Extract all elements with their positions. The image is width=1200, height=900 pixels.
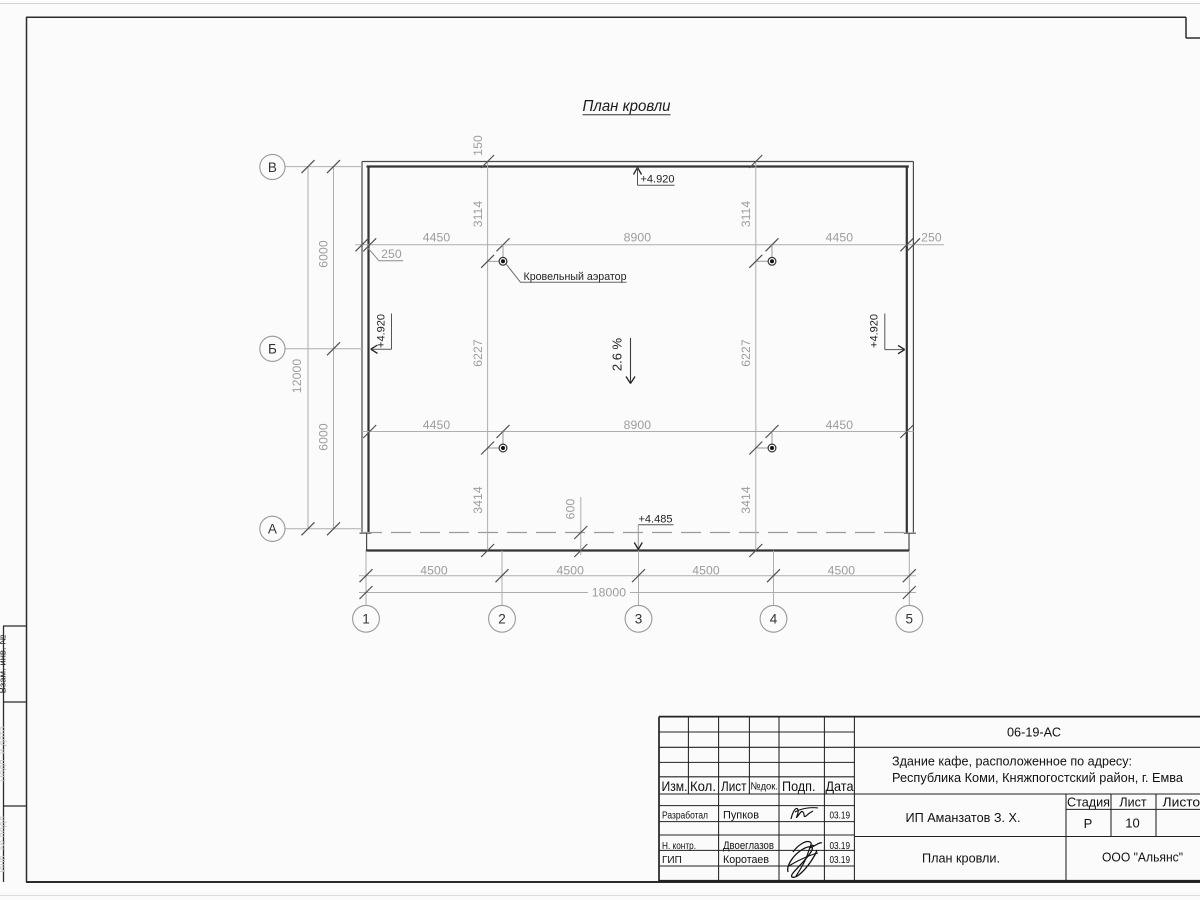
svg-text:4500: 4500: [828, 563, 856, 577]
svg-text:Лист: Лист: [721, 778, 747, 794]
svg-text:03.19: 03.19: [830, 810, 851, 821]
svg-text:4: 4: [770, 612, 778, 627]
svg-text:5: 5: [906, 612, 914, 627]
svg-text:Н. контр.: Н. контр.: [662, 841, 696, 852]
svg-text:Подп.: Подп.: [782, 778, 816, 794]
svg-text:Дата: Дата: [826, 778, 854, 794]
svg-text:4500: 4500: [420, 563, 448, 577]
svg-text:4500: 4500: [692, 563, 720, 577]
svg-text:6227: 6227: [739, 339, 753, 367]
svg-text:12000: 12000: [290, 359, 304, 394]
svg-text:+4.920: +4.920: [641, 174, 675, 186]
svg-text:6000: 6000: [316, 240, 330, 268]
svg-text:Кровельный аэратор: Кровельный аэратор: [524, 271, 627, 283]
svg-text:Двоеглазов: Двоеглазов: [723, 840, 774, 852]
svg-text:4450: 4450: [423, 230, 451, 244]
svg-text:4500: 4500: [556, 563, 584, 577]
svg-text:600: 600: [564, 499, 578, 520]
svg-text:3414: 3414: [739, 486, 753, 514]
svg-text:Пупков: Пупков: [723, 809, 759, 821]
svg-text:6227: 6227: [471, 339, 485, 367]
svg-text:Взам. инв. №: Взам. инв. №: [0, 635, 9, 694]
svg-text:+4.920: +4.920: [376, 314, 388, 348]
svg-text:Республика Коми, Княжпогостски: Республика Коми, Княжпогостский район, г…: [892, 770, 1184, 785]
svg-text:Разработал: Разработал: [662, 809, 708, 821]
svg-text:03.19: 03.19: [830, 841, 851, 852]
svg-text:Коротаев: Коротаев: [723, 854, 769, 866]
svg-text:ГИП: ГИП: [662, 855, 682, 866]
svg-text:3114: 3114: [739, 201, 753, 228]
svg-text:2.6 %: 2.6 %: [610, 337, 625, 371]
svg-text:План кровли.: План кровли.: [922, 850, 1000, 865]
svg-text:+4.485: +4.485: [639, 514, 673, 526]
svg-text:4450: 4450: [826, 418, 854, 432]
svg-text:06-19-АС: 06-19-АС: [1007, 725, 1061, 740]
svg-text:Стадия: Стадия: [1067, 795, 1110, 809]
svg-text:ООО "Альянс": ООО "Альянс": [1102, 849, 1183, 864]
svg-text:А: А: [268, 522, 277, 537]
svg-text:18000: 18000: [592, 585, 627, 599]
svg-text:Инв. № подл.: Инв. № подл.: [0, 813, 8, 872]
svg-text:№док.: №док.: [751, 781, 779, 793]
svg-text:4450: 4450: [423, 418, 451, 432]
svg-text:Кол.: Кол.: [690, 778, 716, 794]
svg-text:250: 250: [381, 247, 402, 261]
svg-text:3414: 3414: [471, 486, 485, 514]
svg-text:Лист: Лист: [1119, 795, 1146, 809]
svg-text:Подп. и дата: Подп. и дата: [0, 725, 8, 782]
svg-text:Листов: Листов: [1163, 795, 1200, 809]
svg-text:8900: 8900: [624, 230, 652, 244]
svg-text:Здание кафе, расположенное по: Здание кафе, расположенное по адресу:: [892, 754, 1132, 769]
svg-text:+4.920: +4.920: [869, 314, 881, 348]
svg-text:10: 10: [1125, 815, 1139, 830]
svg-text:03.19: 03.19: [830, 855, 851, 866]
svg-text:2: 2: [498, 612, 506, 627]
svg-text:150: 150: [471, 135, 485, 156]
svg-text:1: 1: [362, 612, 370, 627]
svg-text:3: 3: [635, 612, 643, 627]
svg-text:Изм.: Изм.: [662, 778, 688, 794]
svg-text:План кровли: План кровли: [583, 98, 671, 115]
svg-text:250: 250: [921, 230, 942, 244]
svg-text:Б: Б: [268, 342, 277, 357]
svg-text:В: В: [268, 160, 277, 175]
svg-text:3114: 3114: [471, 201, 485, 228]
svg-text:ИП Аманзатов З. Х.: ИП Аманзатов З. Х.: [906, 810, 1021, 825]
svg-text:4450: 4450: [826, 230, 854, 244]
svg-text:6000: 6000: [316, 423, 330, 451]
svg-text:Р: Р: [1084, 816, 1093, 831]
svg-text:8900: 8900: [624, 418, 652, 432]
